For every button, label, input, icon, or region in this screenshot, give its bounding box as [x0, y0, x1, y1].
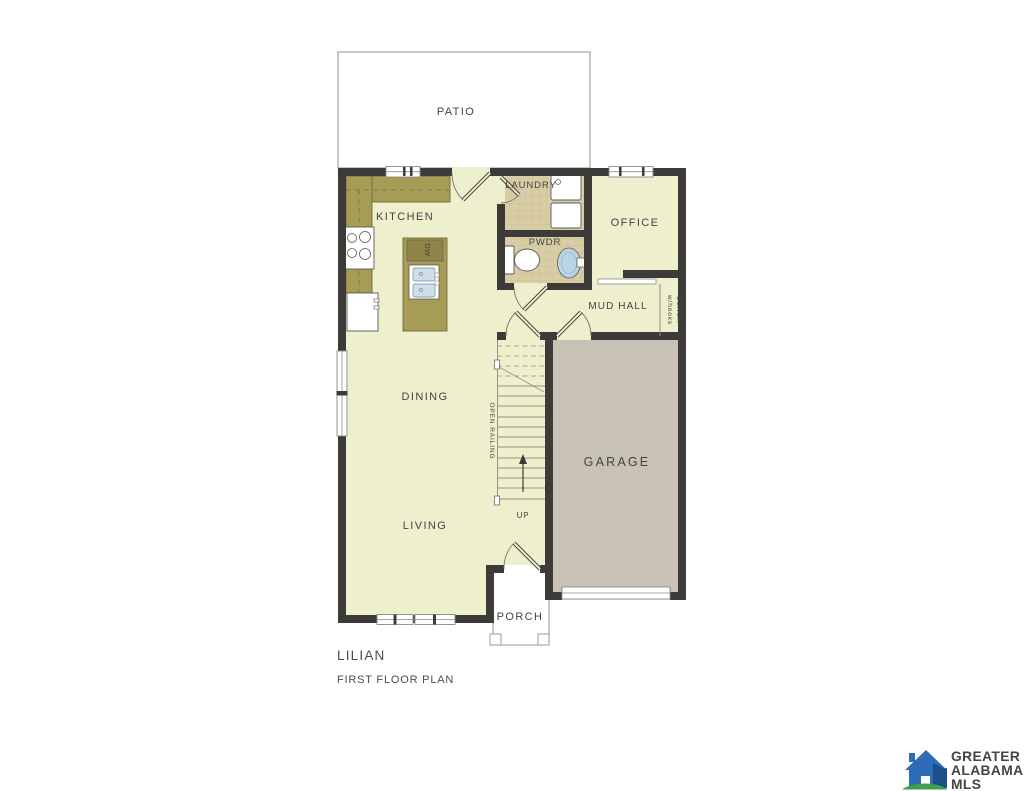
dining-label: DINING	[402, 391, 449, 403]
mls-logo-line3: MLS	[951, 777, 981, 791]
patio-door-opening	[452, 167, 490, 177]
dining-windows	[337, 351, 348, 436]
floor-plan-drawing: PATIO DW	[0, 0, 1024, 791]
mls-house-icon	[902, 750, 948, 790]
office-window	[609, 167, 653, 178]
kitchen-window	[386, 167, 420, 178]
garage-label: GARAGE	[584, 455, 651, 469]
living-label: LIVING	[403, 520, 447, 532]
pwdr-label: PWDR	[529, 237, 562, 248]
cased-opening	[598, 279, 656, 284]
mls-logo: GREATER ALABAMA MLS	[902, 749, 1024, 791]
laundry-label: LAUNDRY	[505, 180, 557, 191]
dishwasher-label: DW	[423, 243, 432, 257]
bench-label: BENCH	[675, 296, 682, 323]
office-label: OFFICE	[611, 217, 660, 229]
kitchen-label: KITCHEN	[376, 211, 434, 223]
porch-label: PORCH	[497, 611, 544, 623]
mud-hall-label: MUD HALL	[588, 301, 647, 312]
newel-post	[495, 496, 500, 505]
newel-post	[495, 360, 500, 369]
bench-sub-label: w/hooks	[666, 294, 673, 325]
island-sink-icon	[409, 265, 439, 299]
refrigerator-icon	[347, 293, 379, 331]
floor-plan-page: PATIO DW	[0, 0, 1024, 791]
patio: PATIO	[338, 52, 590, 168]
stove-icon	[343, 227, 374, 269]
plan-subtitle: FIRST FLOOR PLAN	[337, 674, 454, 686]
garage-door	[562, 587, 670, 599]
plan-title: LILIAN	[337, 648, 385, 663]
patio-label: PATIO	[437, 106, 475, 118]
plan-title-block: LILIAN FIRST FLOOR PLAN	[337, 648, 454, 686]
up-label: UP	[517, 511, 530, 520]
mls-logo-line2: ALABAMA	[951, 763, 1024, 778]
porch-post	[490, 634, 501, 645]
living-windows	[377, 615, 455, 625]
porch-post	[538, 634, 549, 645]
porch: PORCH	[490, 573, 549, 645]
dryer-icon	[551, 203, 581, 228]
mls-logo-line1: GREATER	[951, 749, 1020, 764]
open-railing-label: OPEN RAILING	[488, 402, 495, 459]
